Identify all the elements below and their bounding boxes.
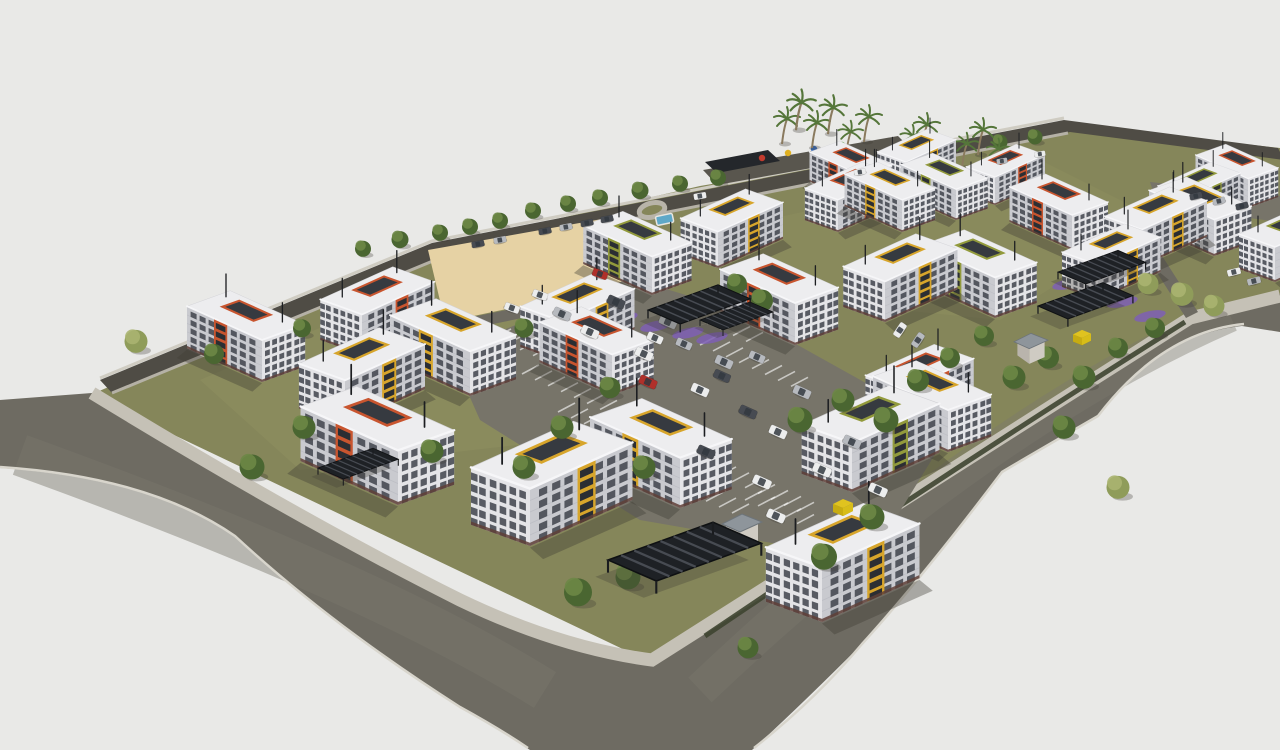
site-render bbox=[0, 0, 1280, 750]
render-stage bbox=[0, 0, 1280, 750]
playground-item bbox=[785, 150, 791, 156]
playground-item bbox=[759, 155, 765, 161]
